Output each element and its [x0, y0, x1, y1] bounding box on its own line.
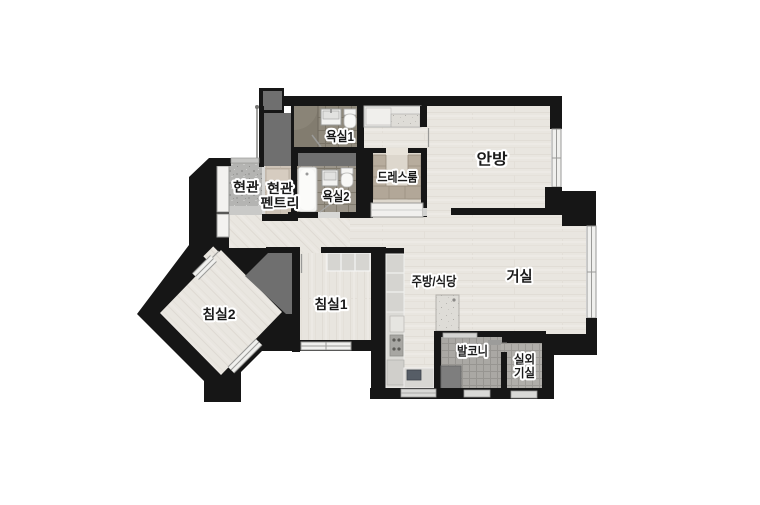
- svg-text:침실1: 침실1: [315, 297, 348, 312]
- svg-text:욕실1: 욕실1: [326, 129, 354, 144]
- svg-text:발코니: 발코니: [457, 344, 488, 359]
- svg-text:욕실2: 욕실2: [323, 189, 350, 204]
- svg-text:실외: 실외: [514, 351, 535, 366]
- svg-text:거실: 거실: [507, 269, 533, 286]
- svg-text:주방/식당: 주방/식당: [412, 274, 457, 289]
- svg-text:기실: 기실: [514, 365, 535, 380]
- svg-text:현관: 현관: [233, 180, 259, 195]
- svg-text:드레스룸: 드레스룸: [378, 170, 418, 185]
- svg-text:펜트리: 펜트리: [261, 196, 300, 211]
- svg-text:현관: 현관: [267, 181, 293, 196]
- svg-text:안방: 안방: [477, 150, 508, 168]
- svg-text:침실2: 침실2: [203, 307, 236, 322]
